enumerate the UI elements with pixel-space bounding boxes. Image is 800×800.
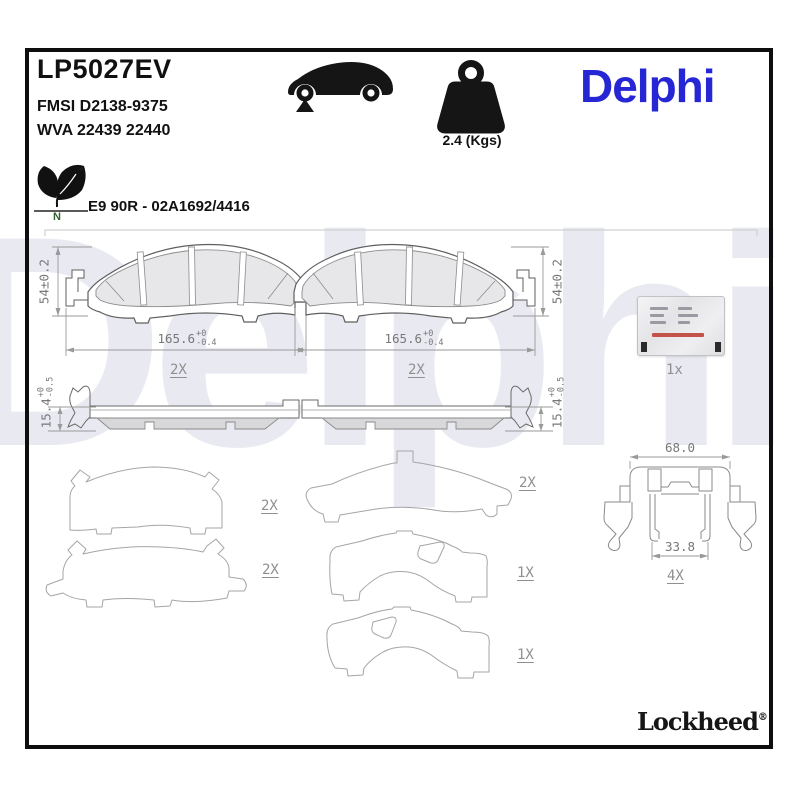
shim-b-qty: 2X: [262, 562, 279, 578]
drawing-area-rule: [45, 230, 757, 236]
pad-side-left-drawing: [68, 386, 299, 429]
shim-outer-upper-drawing: [70, 467, 222, 534]
shim-slot: [372, 617, 396, 638]
shim-e-qty: 1X: [517, 647, 534, 663]
tol-minus: -0.4: [196, 339, 216, 348]
part-number: LP5027EV: [37, 54, 172, 85]
pad-side-right-drawing: [302, 386, 533, 429]
abutment-clip-drawing: [604, 467, 756, 550]
wva-reference: WVA 22439 22440: [37, 122, 170, 140]
shim-a-qty: 2X: [261, 498, 278, 514]
grease-sachet-photo: [637, 296, 725, 356]
pad-right-qty: 2X: [408, 362, 425, 378]
weight-icon: [440, 64, 503, 132]
tol-minus: -0.5: [46, 377, 55, 397]
weight-value: 2.4 (Kgs): [427, 132, 517, 148]
sachet-qty: 1x: [666, 362, 683, 378]
technical-drawing-canvas: [0, 0, 800, 800]
front-axle-arrow-icon: [296, 99, 314, 112]
shim-slotted-b-drawing: [327, 607, 489, 678]
datasheet-page: Delphi: [0, 0, 800, 800]
registered-symbol: ®: [758, 712, 767, 723]
side-right-thickness-dim: 15.4+0-0.5: [549, 361, 566, 445]
tol-minus: -0.5: [557, 377, 566, 397]
pad-front-right-drawing: [294, 245, 535, 324]
dim-value: 165.6: [384, 331, 422, 346]
eco-mark-letter: N: [46, 211, 68, 223]
clip-top-width-dim: 68.0: [655, 440, 705, 455]
wear-sensor-tab: [513, 270, 535, 306]
car-icon: [288, 62, 393, 112]
sachet-corner-mark: [641, 342, 647, 352]
sachet-corner-mark: [715, 342, 721, 352]
tol-minus: -0.4: [423, 339, 443, 348]
friction-material-side: [322, 418, 504, 429]
shim-c-qty: 2X: [519, 475, 536, 491]
pad-front-left-drawing: [66, 245, 307, 324]
side-left-thickness-dim: 15.4+0-0.5: [38, 361, 55, 445]
shim-slot: [418, 542, 444, 563]
shim-slotted-a-drawing: [330, 531, 488, 602]
clip-bottom-width-dim: 33.8: [658, 539, 702, 554]
dim-value: 165.6: [157, 331, 195, 346]
fmsi-reference: FMSI D2138-9375: [37, 98, 168, 116]
friction-material-side: [97, 418, 279, 429]
wear-sensor-tab: [66, 270, 88, 306]
delphi-logo: Delphi: [580, 59, 715, 113]
pad-right-width-dim: 165.6+0-0.4: [371, 330, 457, 347]
pad-left-qty: 2X: [170, 362, 187, 378]
dim-value: 15.4: [550, 398, 565, 428]
ece-approval-number: E9 90R - 02A1692/4416: [88, 198, 250, 215]
shim-d-qty: 1X: [517, 565, 534, 581]
dim-value: 15.4: [39, 398, 54, 428]
pad-left-height-dim: 54±0.2: [37, 240, 52, 324]
lockheed-logo: Lockheed®: [637, 707, 767, 736]
pad-left-width-dim: 165.6+0-0.4: [144, 330, 230, 347]
clip-qty: 4X: [667, 568, 684, 584]
pad-right-height-dim: 54±0.2: [550, 240, 565, 324]
shim-outer-lower-drawing: [46, 539, 246, 607]
lockheed-wordmark: Lockheed: [637, 707, 758, 736]
shim-inner-arched-drawing: [306, 451, 511, 522]
trademark-symbol: ™: [76, 166, 84, 175]
